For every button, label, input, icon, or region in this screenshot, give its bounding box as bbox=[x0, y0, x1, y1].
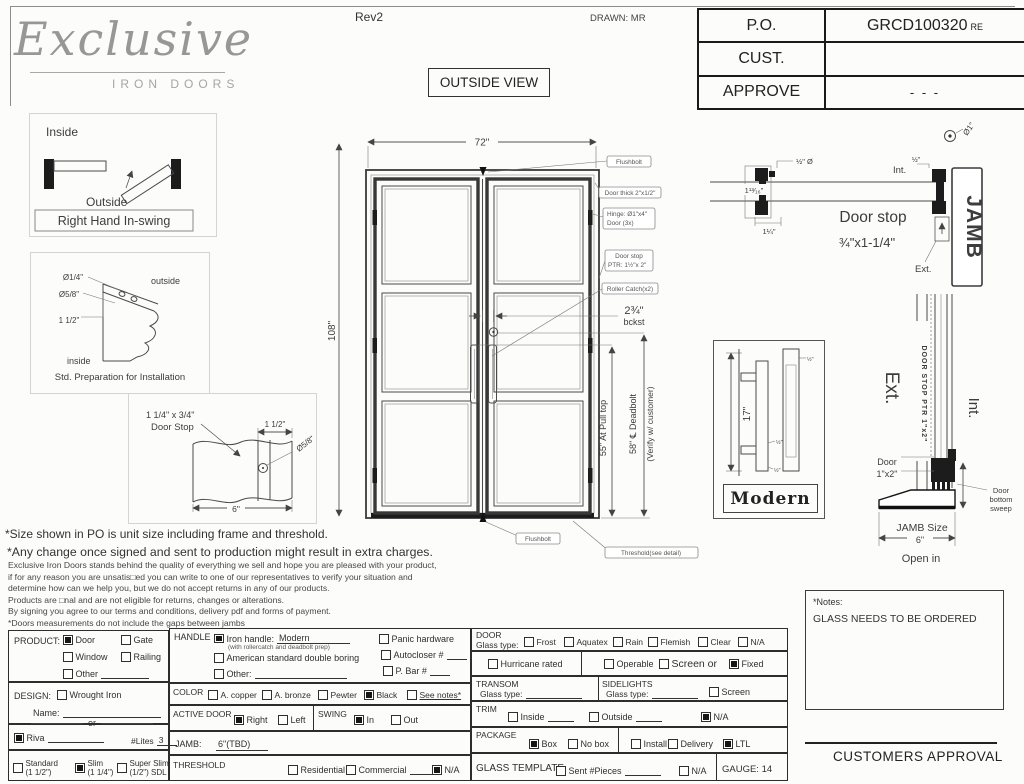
checkbox-fixed[interactable]: Fixed bbox=[729, 659, 764, 669]
checkbox-icon[interactable] bbox=[679, 766, 689, 776]
label: Slim(1 1/4") bbox=[88, 759, 114, 777]
checkbox-icon[interactable] bbox=[723, 739, 733, 749]
checkbox-icon[interactable] bbox=[214, 653, 224, 663]
prep-inside: inside bbox=[67, 356, 91, 366]
checkbox-product-other[interactable]: Other bbox=[63, 669, 149, 679]
checkbox-icon[interactable] bbox=[13, 763, 23, 773]
doorstop-dia58: Ø5/8" bbox=[295, 434, 316, 454]
rated-box: Hurricane rated Operable Screen or Fixed bbox=[471, 651, 788, 676]
label: #Lites bbox=[131, 736, 154, 746]
door-elevation-drawing: 72" 108" bbox=[328, 126, 703, 566]
callout-hinge: Hinge: Ø1"x4"Door (3x) bbox=[603, 208, 655, 229]
door-width-dim: 72" bbox=[475, 138, 490, 149]
glass-template-label: GLASS TEMPLATE bbox=[476, 763, 564, 774]
approve-value[interactable]: - - - bbox=[826, 77, 1024, 108]
checkbox-icon[interactable] bbox=[383, 666, 393, 676]
checkbox-icon[interactable] bbox=[529, 739, 539, 749]
label: Left bbox=[291, 715, 306, 725]
approval-label: CUSTOMERS APPROVAL bbox=[833, 749, 1003, 764]
label: Other: bbox=[227, 669, 252, 679]
label: Iron handle: bbox=[227, 634, 275, 644]
other-blank[interactable] bbox=[101, 670, 149, 679]
checkbox-icon[interactable] bbox=[214, 669, 224, 679]
checkbox-icon[interactable] bbox=[568, 739, 578, 749]
doorstop-drawing: 1 1/4" x 3/4" Door Stop 1 1/2" Ø5/8" 6" bbox=[129, 394, 316, 523]
checkbox-a-bronze[interactable]: A. bronze bbox=[262, 690, 311, 700]
backset-label: bckst bbox=[623, 317, 645, 327]
checkbox-autocloser[interactable]: Autocloser # bbox=[381, 650, 467, 660]
callout-text: Roller Catch(x2) bbox=[607, 286, 653, 293]
po-suffix: RE bbox=[970, 22, 983, 32]
handle-style-text: Modern bbox=[730, 489, 810, 509]
jamb-field-box: JAMB: 6"(TBD) bbox=[169, 731, 471, 755]
prep-dia14: Ø1/4" bbox=[63, 273, 83, 282]
checkbox-icon[interactable] bbox=[729, 659, 739, 669]
label: Aquatex bbox=[577, 637, 608, 647]
door-glass-box: DOOR Glass type: Frost Aquatex Rain Flem… bbox=[471, 628, 788, 651]
checkbox-rain[interactable]: Rain bbox=[613, 637, 643, 647]
jamb-field-label: JAMB: bbox=[175, 739, 202, 749]
doorstop-size: 1 1/4" x 3/4" bbox=[146, 410, 194, 420]
pieces-blank[interactable] bbox=[625, 767, 661, 776]
checkbox-p-bar[interactable]: P. Bar # bbox=[383, 666, 450, 676]
riva-box: Riva #Lites3 bbox=[8, 724, 169, 750]
divider bbox=[598, 677, 599, 700]
checkbox-threshold-na[interactable]: N/A bbox=[432, 765, 460, 775]
checkbox-icon[interactable] bbox=[57, 690, 67, 700]
label: Autocloser # bbox=[394, 650, 444, 660]
notes-box-title: *Notes: bbox=[813, 597, 843, 607]
label: Flemish bbox=[661, 637, 691, 647]
jamb-half-dim: ½" bbox=[912, 156, 921, 164]
transom-glass-blank[interactable] bbox=[526, 690, 582, 699]
checkbox-residential[interactable]: Residential bbox=[288, 765, 345, 775]
color-label: COLOR bbox=[173, 687, 203, 697]
checkbox-door[interactable]: Door bbox=[63, 635, 95, 645]
notes-box: *Notes: GLASS NEEDS TO BE ORDERED bbox=[805, 590, 1004, 710]
checkbox-see-notes[interactable]: See notes* bbox=[407, 690, 461, 700]
threshold-label: THRESHOLD bbox=[173, 760, 225, 770]
handle-dim-3: ½" bbox=[774, 467, 781, 474]
checkbox-install[interactable]: Install bbox=[631, 739, 667, 749]
checkbox-icon[interactable] bbox=[508, 712, 518, 722]
divider bbox=[618, 728, 619, 752]
flushbolt-top-marker bbox=[480, 167, 487, 176]
checkbox-frost[interactable]: Frost bbox=[524, 637, 556, 647]
sidelights-label: SIDELIGHTS bbox=[602, 679, 653, 689]
checkbox-a-copper[interactable]: A. copper bbox=[208, 690, 257, 700]
rev-label: Rev2 bbox=[355, 10, 383, 24]
checkbox-icon[interactable] bbox=[214, 634, 224, 644]
checkbox-wrought-iron[interactable]: Wrought Iron bbox=[57, 690, 121, 700]
jamb-size-dim: 6" bbox=[916, 535, 924, 545]
checkbox-american-boring[interactable]: American standard double boring bbox=[214, 653, 359, 663]
label: Box bbox=[542, 739, 558, 749]
checkbox-icon[interactable] bbox=[432, 765, 442, 775]
prep-drawing: Ø1/4" Ø5/8" 1 1/2" outside inside Std. P… bbox=[31, 253, 209, 393]
checkbox-sidelights-screen[interactable]: Screen bbox=[709, 687, 750, 697]
checkbox-icon[interactable] bbox=[659, 659, 669, 669]
checkbox-icon[interactable] bbox=[208, 690, 218, 700]
checkbox-icon[interactable] bbox=[63, 652, 73, 662]
label: Right bbox=[247, 715, 268, 725]
riva-blank[interactable] bbox=[48, 734, 104, 743]
outside-view-label: OUTSIDE VIEW bbox=[428, 68, 550, 97]
doorstop-title: Door Stop bbox=[151, 422, 194, 433]
label: Glass type: bbox=[606, 689, 649, 699]
prep-diagram: Ø1/4" Ø5/8" 1 1/2" outside inside Std. P… bbox=[30, 252, 210, 394]
callout-text: Door (3x) bbox=[607, 220, 634, 227]
label: Clear bbox=[711, 637, 731, 647]
callout-flushbolt-top: Flushbolt bbox=[607, 156, 651, 167]
checkbox-icon[interactable] bbox=[234, 715, 244, 725]
checkbox-trim-na[interactable]: N/A bbox=[701, 712, 729, 722]
trim-box: TRIM Inside Outside N/A bbox=[471, 701, 788, 727]
label: N/A bbox=[751, 637, 765, 647]
name-blank[interactable] bbox=[63, 709, 161, 718]
sheet-border-top bbox=[10, 6, 1015, 7]
checkbox-icon[interactable] bbox=[381, 650, 391, 660]
label: Standard(1 1/2") bbox=[26, 759, 58, 777]
label: Black bbox=[377, 690, 398, 700]
threshold-ext-label: Ext. bbox=[881, 372, 902, 405]
label: Screen bbox=[722, 687, 751, 697]
label: Gate bbox=[134, 635, 154, 645]
label: Glass type: bbox=[480, 689, 523, 699]
checkbox-template-na[interactable]: N/A bbox=[679, 766, 707, 776]
checkbox-icon[interactable] bbox=[701, 712, 711, 722]
handle-dim-2: ½" bbox=[776, 439, 783, 446]
checkbox-icon[interactable] bbox=[488, 659, 498, 669]
checkbox-icon[interactable] bbox=[121, 652, 131, 662]
callout-flushbolt-bottom: Flushbolt bbox=[516, 533, 560, 544]
threshold-int-label: Int. bbox=[965, 398, 982, 419]
checkbox-icon[interactable] bbox=[391, 715, 401, 725]
label: Other bbox=[76, 669, 99, 679]
jamb-1316-dim: 1¹³⁄₁₆" bbox=[745, 186, 764, 195]
label: Panic hardware bbox=[392, 634, 455, 644]
checkbox-ltl[interactable]: LTL bbox=[723, 739, 750, 749]
iron-handle-value[interactable]: Modern bbox=[277, 633, 350, 644]
drawn-label: DRAWN: MR bbox=[590, 13, 646, 24]
checkbox-icon[interactable] bbox=[589, 712, 599, 722]
handle-box: HANDLE Iron handle:Modern (with rollerca… bbox=[169, 628, 471, 683]
checkbox-panic-hardware[interactable]: Panic hardware bbox=[379, 634, 454, 644]
label: A. copper bbox=[221, 690, 257, 700]
checkbox-handle-other[interactable]: Other: bbox=[214, 669, 347, 679]
swing-diagram: Inside Outside Right Hand In-swing bbox=[29, 113, 217, 237]
checkbox-icon[interactable] bbox=[668, 739, 678, 749]
fine-print-line: if for any reason you are unsatis□ed you… bbox=[8, 572, 548, 584]
package-label: PACKAGE bbox=[476, 730, 516, 740]
label: See notes* bbox=[420, 690, 462, 700]
jamb-label: JAMB bbox=[962, 195, 985, 259]
open-in-label: Open in bbox=[902, 553, 941, 565]
checkbox-swing-out[interactable]: Out bbox=[391, 715, 418, 725]
callout-text: Door thick 2"x1/2" bbox=[605, 190, 656, 197]
checkbox-window[interactable]: Window bbox=[63, 652, 108, 662]
checkbox-sent-pieces[interactable]: Sent #Pieces bbox=[556, 766, 661, 776]
fine-print-line: determine how can we help you, but we do… bbox=[8, 583, 548, 595]
fine-print-line: Exclusive Iron Doors stands behind the q… bbox=[8, 560, 548, 572]
door-section-label: DOOR bbox=[476, 630, 502, 640]
logo-subtitle: IRON DOORS bbox=[112, 77, 239, 91]
checkbox-icon[interactable] bbox=[121, 635, 131, 645]
cust-value[interactable] bbox=[826, 43, 1024, 74]
product-label: PRODUCT: bbox=[14, 636, 60, 646]
doorstop-detail: 1 1/4" x 3/4" Door Stop 1 1/2" Ø5/8" 6" bbox=[128, 393, 317, 524]
logo-underline bbox=[30, 72, 225, 73]
checkbox-icon[interactable] bbox=[14, 733, 24, 743]
prep-dim: 1 1/2" bbox=[59, 316, 80, 325]
thickness-box: Standard(1 1/2") Slim(1 1/4") Super Slim… bbox=[8, 750, 169, 781]
handle-detail: 17" ½" ½" ½" Modern bbox=[713, 340, 825, 519]
pull-height-dim: 55" At Pull top bbox=[598, 400, 608, 456]
label: Fixed bbox=[742, 659, 764, 669]
callout-text: Door stop bbox=[615, 253, 643, 260]
callout-text: Hinge: Ø1"x4" bbox=[607, 211, 647, 218]
divider bbox=[716, 754, 717, 780]
jamb-dia1-label: Ø1" bbox=[961, 121, 976, 137]
jamb-doorstop-title: Door stop bbox=[839, 209, 906, 226]
label: Install bbox=[644, 739, 668, 749]
checkbox-slim[interactable]: Slim(1 1/4") bbox=[75, 759, 113, 777]
jamb-doorstop-size: ¾"x1-1/4" bbox=[839, 235, 896, 250]
door-height-dim: 108" bbox=[328, 320, 338, 341]
swing-drawing: Inside Outside Right Hand In-swing bbox=[30, 114, 216, 236]
sidelights-glass-blank[interactable] bbox=[652, 690, 698, 699]
checkbox-icon[interactable] bbox=[709, 687, 719, 697]
checkbox-active-left[interactable]: Left bbox=[278, 715, 306, 725]
checkbox-active-right[interactable]: Right bbox=[234, 715, 268, 725]
other-blank[interactable] bbox=[255, 670, 347, 679]
jamb-value-text[interactable]: 6"(TBD) bbox=[216, 739, 268, 751]
label: Pewter bbox=[331, 690, 357, 700]
checkbox-screen-or[interactable]: Screen or bbox=[659, 658, 717, 670]
label: Window bbox=[76, 652, 108, 662]
design-label: DESIGN: bbox=[14, 691, 51, 701]
threshold-door-label: Door bbox=[877, 457, 897, 467]
doorstop-width: 6" bbox=[232, 504, 240, 514]
approval-line[interactable] bbox=[805, 742, 997, 744]
checkbox-flemish[interactable]: Flemish bbox=[648, 637, 690, 647]
fine-print-line: Products are □nal and are not eligible f… bbox=[8, 595, 548, 607]
checkbox-pewter[interactable]: Pewter bbox=[318, 690, 357, 700]
label: Delivery bbox=[681, 739, 714, 749]
checkbox-icon[interactable] bbox=[63, 669, 73, 679]
checkbox-swing-in[interactable]: In bbox=[354, 715, 374, 725]
label: Residential bbox=[301, 765, 346, 775]
checkbox-box[interactable]: Box bbox=[529, 739, 557, 749]
product-box: PRODUCT: Door Gate Window Railing Other bbox=[8, 630, 169, 682]
po-label: P.O. bbox=[699, 10, 826, 41]
jamb-value[interactable]: 6"(TBD) bbox=[216, 739, 268, 751]
label: N/A bbox=[692, 766, 707, 776]
checkbox-super-slim[interactable]: Super Slim(1/2") SDL bbox=[117, 759, 169, 777]
checkbox-icon[interactable] bbox=[354, 715, 364, 725]
checkbox-icon[interactable] bbox=[648, 637, 658, 647]
label: Outside bbox=[602, 712, 633, 722]
checkbox-aquatex[interactable]: Aquatex bbox=[564, 637, 608, 647]
checkbox-railing[interactable]: Railing bbox=[121, 652, 161, 662]
handle-height-dim: 17" bbox=[742, 406, 753, 421]
checkbox-operable[interactable]: Operable bbox=[604, 659, 654, 669]
door-leaves bbox=[375, 179, 590, 513]
handle-style-label: Modern bbox=[723, 484, 818, 513]
label: No box bbox=[581, 739, 610, 749]
label: P. Bar # bbox=[396, 666, 427, 676]
trim-label: TRIM bbox=[476, 704, 497, 714]
design-name-field[interactable]: Name: bbox=[33, 708, 161, 718]
label: N/A bbox=[714, 712, 729, 722]
checkbox-icon[interactable] bbox=[75, 763, 85, 773]
callout-door-stop: Door stopPTR: 1½"x 2" bbox=[605, 250, 653, 271]
outside-label: Outside bbox=[86, 195, 128, 209]
jamb-ext-label: Ext. bbox=[915, 264, 931, 275]
approve-label: APPROVE bbox=[699, 77, 826, 108]
label: In bbox=[367, 715, 375, 725]
label: Frost bbox=[537, 637, 556, 647]
checkbox-icon[interactable] bbox=[278, 715, 288, 725]
doorstop-dim112: 1 1/2" bbox=[265, 420, 286, 429]
label: Out bbox=[404, 715, 419, 725]
glass-template-box: GLASS TEMPLATE Sent #Pieces N/A GAUGE: 1… bbox=[471, 753, 788, 781]
checkbox-no-box[interactable]: No box bbox=[568, 739, 609, 749]
autocloser-blank[interactable] bbox=[447, 651, 467, 660]
callout-text: Threshold(see detail) bbox=[621, 550, 681, 557]
swing-caption: Right Hand In-swing bbox=[58, 214, 171, 228]
note-change: *Any change once signed and sent to prod… bbox=[7, 545, 433, 559]
callout-threshold: Threshold(see detail) bbox=[605, 547, 698, 558]
trim-outside-blank[interactable] bbox=[636, 713, 662, 722]
callout-text: Flushbolt bbox=[525, 536, 551, 543]
backset-dim: 2¾" bbox=[624, 305, 643, 317]
checkbox-icon[interactable] bbox=[738, 637, 748, 647]
checkbox-icon[interactable] bbox=[556, 766, 566, 776]
label: Super Slim(1/2") SDL bbox=[130, 759, 169, 777]
transom-sidelights-box: TRANSOM Glass type: SIDELIGHTS Glass typ… bbox=[471, 676, 788, 701]
checkbox-icon[interactable] bbox=[631, 739, 641, 749]
checkbox-icon[interactable] bbox=[288, 765, 298, 775]
callout-text: PTR: 1½"x 2" bbox=[608, 261, 646, 269]
threshold-door-size: 1"x2" bbox=[877, 469, 898, 479]
threshold-field-box: THRESHOLD Residential Commercial N/A bbox=[169, 755, 471, 781]
callout-door-thick: Door thick 2"x1/2" bbox=[599, 187, 661, 198]
checkbox-standard[interactable]: Standard(1 1/2") bbox=[13, 759, 58, 777]
pbar-blank[interactable] bbox=[430, 667, 450, 676]
checkbox-black[interactable]: Black bbox=[364, 690, 397, 700]
checkbox-commercial[interactable]: Commercial bbox=[346, 765, 436, 775]
checkbox-icon[interactable] bbox=[407, 690, 417, 700]
jamb-section-drawing: ½" Ø 1¹³⁄₁₆" 1¼" Int. ½" Ø1" JAMB Door s… bbox=[695, 120, 1024, 308]
note-size: *Size shown in PO is unit size including… bbox=[5, 527, 328, 541]
label: Rain bbox=[626, 637, 643, 647]
deadbolt-verify-note: (Verify w/ customer) bbox=[645, 386, 655, 461]
label: Hurricane rated bbox=[501, 659, 563, 669]
po-row: P.O. GRCD100320RE bbox=[699, 10, 1024, 43]
logo-script: Exclusive bbox=[14, 12, 253, 66]
checkbox-icon[interactable] bbox=[346, 765, 356, 775]
checkbox-icon[interactable] bbox=[117, 763, 127, 773]
label: Inside bbox=[521, 712, 545, 722]
checkbox-icon[interactable] bbox=[262, 690, 272, 700]
label: A. bronze bbox=[275, 690, 311, 700]
checkbox-hurricane[interactable]: Hurricane rated bbox=[488, 659, 563, 669]
po-table: P.O. GRCD100320RE CUST. APPROVE - - - bbox=[697, 8, 1024, 110]
callout-text: Flushbolt bbox=[616, 159, 642, 166]
label: Wrought Iron bbox=[70, 690, 122, 700]
label: Screen or bbox=[672, 658, 718, 670]
design-box: DESIGN: Wrought Iron Name: or bbox=[8, 682, 169, 724]
checkbox-delivery[interactable]: Delivery bbox=[668, 739, 713, 749]
checkbox-gate[interactable]: Gate bbox=[121, 635, 153, 645]
handle-drawing: 17" ½" ½" ½" bbox=[714, 341, 824, 481]
jamb-size-label: JAMB Size bbox=[896, 522, 948, 534]
checkbox-icon[interactable] bbox=[364, 690, 374, 700]
sidelights-glass-field[interactable]: Glass type: bbox=[606, 689, 698, 699]
trim-inside-blank[interactable] bbox=[548, 713, 574, 722]
checkbox-icon[interactable] bbox=[564, 637, 574, 647]
label: N/A bbox=[445, 765, 460, 775]
sweep-label-3: sweep bbox=[990, 504, 1012, 513]
notes-box-body[interactable]: GLASS NEEDS TO BE ORDERED bbox=[813, 613, 977, 625]
checkbox-icon[interactable] bbox=[379, 634, 389, 644]
divider bbox=[581, 652, 582, 675]
active-swing-box: ACTIVE DOOR Right Left SWING In Out bbox=[169, 705, 471, 731]
label: Commercial bbox=[359, 765, 407, 775]
transom-label: TRANSOM bbox=[476, 679, 519, 689]
checkbox-trim-inside[interactable]: Inside bbox=[508, 712, 574, 722]
checkbox-icon[interactable] bbox=[63, 635, 73, 645]
transom-glass-field[interactable]: Glass type: bbox=[480, 689, 582, 699]
sheet-border-left bbox=[10, 6, 11, 106]
prep-caption: Std. Preparation for Installation bbox=[55, 372, 185, 383]
label: Railing bbox=[134, 652, 162, 662]
approve-row: APPROVE - - - bbox=[699, 77, 1024, 108]
checkbox-icon[interactable] bbox=[613, 637, 623, 647]
cust-label: CUST. bbox=[699, 43, 826, 74]
po-value[interactable]: GRCD100320RE bbox=[826, 10, 1024, 41]
package-box: PACKAGE Box No box Install Delivery LTL bbox=[471, 727, 788, 753]
jamb-114-dim: 1¼" bbox=[762, 227, 775, 236]
checkbox-glass-na[interactable]: N/A bbox=[738, 637, 765, 647]
checkbox-icon[interactable] bbox=[604, 659, 614, 669]
checkbox-icon[interactable] bbox=[318, 690, 328, 700]
checkbox-iron-handle[interactable]: Iron handle:Modern bbox=[214, 633, 350, 644]
label: Riva bbox=[27, 733, 45, 743]
divider bbox=[313, 706, 314, 730]
iron-handle-sub: (with rollercatch and deadbolt prep) bbox=[228, 644, 330, 651]
threshold-doorstop-label: DOOR STOP PTR 1"x2" bbox=[920, 346, 927, 443]
checkbox-icon[interactable] bbox=[698, 637, 708, 647]
handle-label: HANDLE bbox=[174, 632, 211, 642]
outside-view-text: OUTSIDE VIEW bbox=[440, 75, 538, 90]
checkbox-icon[interactable] bbox=[524, 637, 534, 647]
po-number: GRCD100320 bbox=[867, 17, 968, 35]
label: Name: bbox=[33, 708, 60, 718]
gauge-label: GAUGE: 14 bbox=[722, 764, 772, 775]
deadbolt-height-dim: 58" ℄ Deadbolt bbox=[628, 393, 638, 454]
label: American standard double boring bbox=[227, 653, 360, 663]
checkbox-riva[interactable]: Riva bbox=[14, 733, 104, 743]
label: Operable bbox=[617, 659, 654, 669]
threshold-section-drawing: DOOR STOP PTR 1"x2" Ext. Int. Door 1"x2"… bbox=[851, 286, 1024, 582]
checkbox-clear[interactable]: Clear bbox=[698, 637, 731, 647]
label: LTL bbox=[736, 739, 751, 749]
prep-dia58: Ø5/8" bbox=[59, 290, 79, 299]
checkbox-trim-outside[interactable]: Outside bbox=[589, 712, 662, 722]
sweep-label-1: Door bbox=[993, 486, 1010, 495]
